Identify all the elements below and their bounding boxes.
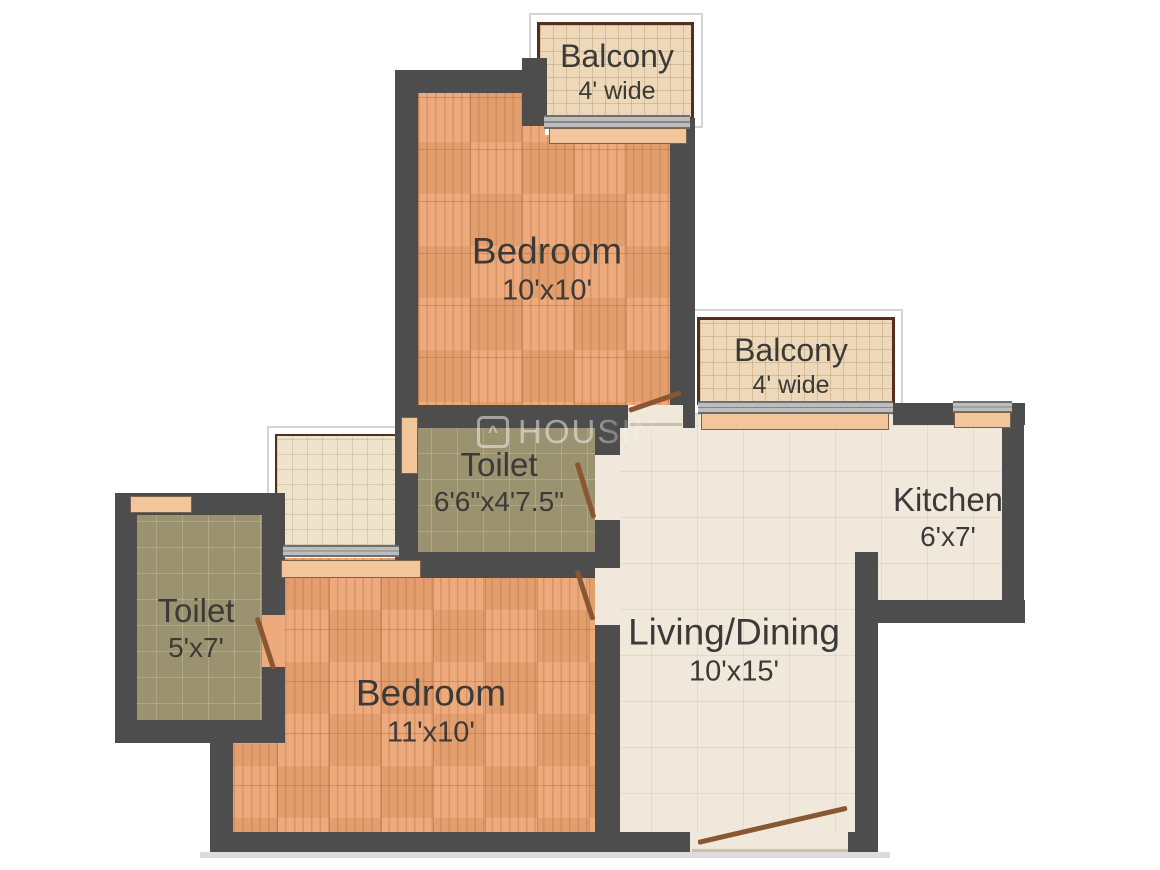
wall [893, 403, 955, 425]
wall [670, 118, 695, 428]
room-name: Balcony [560, 40, 674, 74]
room-name: Toilet [157, 594, 234, 629]
room-label-balcony-middle: Balcony 4' wide [734, 334, 848, 398]
room-name: Kitchen [893, 483, 1003, 518]
wall [115, 720, 285, 743]
room-dims: 11'x10' [356, 717, 506, 747]
wall [855, 600, 1025, 623]
room-label-toilet-middle: Toilet 6'6"x4'7.5" [434, 448, 564, 516]
window-sill [954, 412, 1011, 428]
room-name: Living/Dining [628, 613, 840, 652]
room-label-kitchen: Kitchen 6'x7' [893, 483, 1003, 551]
wall [1002, 403, 1024, 623]
door-threshold [692, 849, 848, 852]
room-label-balcony-top: Balcony 4' wide [560, 40, 674, 104]
wall [262, 667, 285, 743]
wall [395, 552, 620, 578]
room-name: Balcony [734, 334, 848, 368]
wall [395, 70, 418, 428]
room-name: Bedroom [356, 674, 506, 713]
room-dims: 6'6"x4'7.5" [434, 487, 564, 516]
room-dims: 6'x7' [893, 522, 1003, 551]
window [544, 115, 690, 129]
room-dims: 4' wide [560, 78, 674, 104]
window-sill [549, 128, 687, 144]
housing-watermark: ^ HOUSING [477, 413, 686, 451]
room-label-toilet-left: Toilet 5'x7' [157, 594, 234, 662]
utility-floor [275, 434, 402, 547]
floor-plan: Balcony 4' wide Bedroom 10'x10' Balcony … [0, 0, 1160, 870]
room-label-bedroom-bottom: Bedroom 11'x10' [356, 674, 506, 747]
wall [262, 493, 285, 615]
window-sill [281, 560, 421, 578]
wall-shadow [200, 852, 890, 858]
room-name: Bedroom [472, 232, 622, 271]
room-dims: 4' wide [734, 372, 848, 398]
wall [855, 552, 878, 854]
room-name: Toilet [434, 448, 564, 483]
window-sill [701, 413, 889, 430]
window [283, 545, 399, 557]
room-label-living-dining: Living/Dining 10'x15' [628, 613, 840, 686]
wall [115, 493, 137, 743]
door-opening [595, 568, 620, 625]
window-sill [401, 417, 418, 474]
wall [848, 832, 878, 854]
room-dims: 10'x15' [628, 656, 840, 686]
door-opening [595, 455, 620, 520]
house-icon: ^ [477, 416, 509, 448]
room-label-bedroom-top: Bedroom 10'x10' [472, 232, 622, 305]
window-sill [130, 496, 192, 513]
room-dims: 5'x7' [157, 633, 234, 662]
room-dims: 10'x10' [472, 275, 622, 305]
wall [210, 832, 690, 854]
watermark-text: HOUSING [518, 413, 686, 451]
wall [595, 625, 620, 832]
